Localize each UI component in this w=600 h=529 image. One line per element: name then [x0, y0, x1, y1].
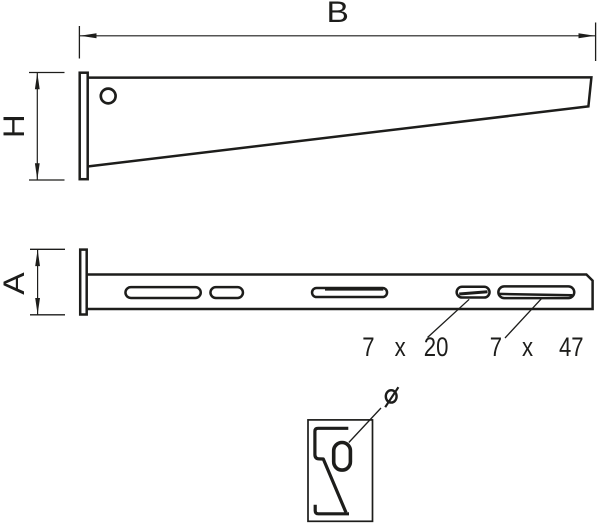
svg-text:20: 20	[424, 333, 449, 363]
svg-text:47: 47	[559, 333, 584, 363]
svg-text:A: A	[0, 272, 31, 295]
svg-text:7: 7	[362, 333, 374, 363]
svg-text:7: 7	[490, 333, 502, 363]
svg-text:x: x	[395, 333, 407, 363]
svg-text:B: B	[326, 0, 348, 29]
svg-text:H: H	[0, 114, 31, 138]
svg-text:x: x	[522, 333, 534, 363]
